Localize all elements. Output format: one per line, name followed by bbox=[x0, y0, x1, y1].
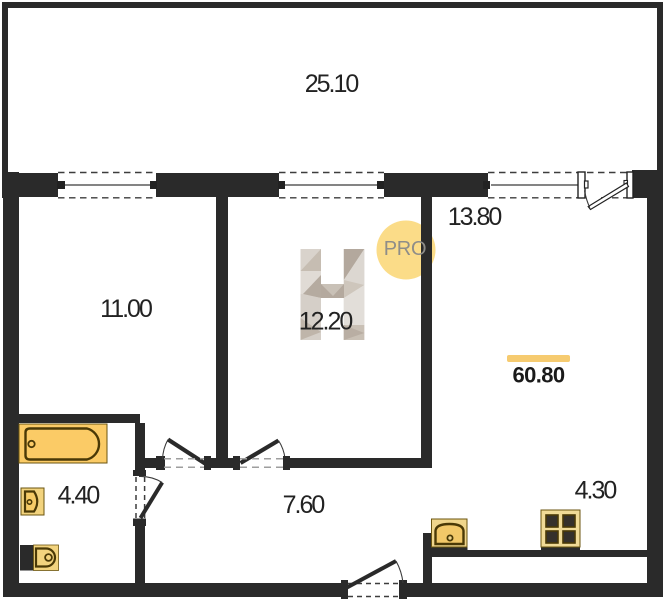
svg-text:11.00: 11.00 bbox=[100, 295, 152, 323]
svg-text:4.40: 4.40 bbox=[58, 482, 100, 510]
svg-text:PRO: PRO bbox=[384, 238, 426, 260]
svg-text:60.80: 60.80 bbox=[512, 363, 564, 388]
svg-text:13.80: 13.80 bbox=[448, 203, 502, 231]
svg-text:7.60: 7.60 bbox=[283, 491, 325, 519]
svg-text:4.30: 4.30 bbox=[575, 477, 617, 505]
svg-text:25.10: 25.10 bbox=[305, 70, 359, 98]
svg-text:12.20: 12.20 bbox=[299, 308, 353, 336]
